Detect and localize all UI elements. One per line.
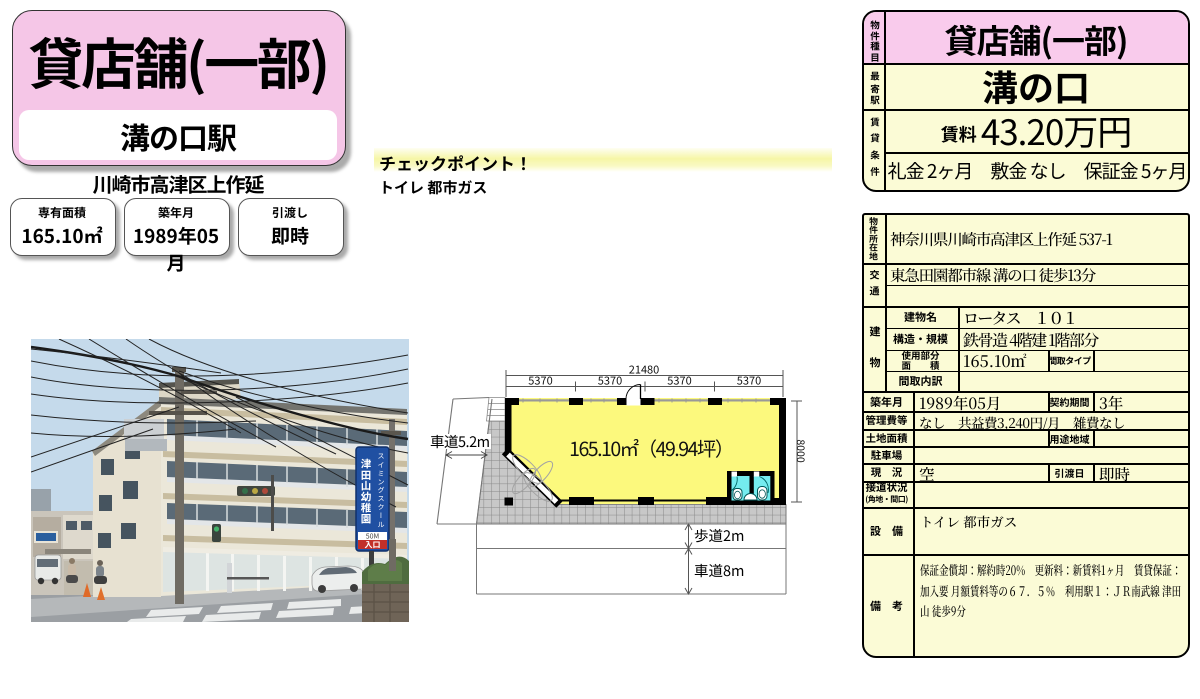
svg-text:車道8m: 車道8m: [694, 560, 744, 581]
svg-text:165.10㎡（49.94坪）: 165.10㎡（49.94坪）: [569, 433, 733, 462]
svg-text:津田山幼稚園: 津田山幼稚園: [359, 458, 374, 524]
svg-text:8000: 8000: [793, 439, 808, 462]
svg-text:5370: 5370: [667, 373, 691, 389]
svg-text:歩道2m: 歩道2m: [694, 525, 744, 546]
svg-text:21480: 21480: [629, 362, 660, 378]
svg-text:入口: 入口: [365, 540, 381, 551]
svg-text:車道5.2m: 車道5.2m: [430, 431, 490, 452]
svg-text:5370: 5370: [528, 373, 552, 389]
svg-text:スイミングスクール: スイミングスクール: [376, 452, 386, 529]
svg-text:5370: 5370: [598, 373, 622, 389]
svg-text:5370: 5370: [737, 373, 761, 389]
